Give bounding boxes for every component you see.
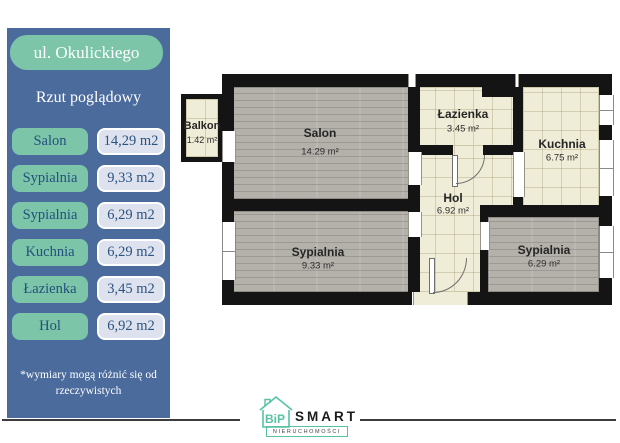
- balcony-label: Balkon: [184, 120, 221, 132]
- bedroom2-window: [599, 226, 614, 278]
- balcony-area: 1.42 m²: [187, 135, 218, 145]
- entrance-opening: [413, 292, 468, 305]
- hall-area: 6.92 m²: [437, 206, 469, 217]
- footer-rule-right: [360, 419, 616, 421]
- bedroom1-label: Sypialnia: [292, 245, 345, 259]
- agency-logo: BiP SMART NIERUCHOMOŚCI: [258, 392, 358, 440]
- salon-area: 14.29 m²: [301, 147, 339, 158]
- kitchen-window-2: [599, 140, 614, 196]
- wall-top-kitchen: [517, 74, 612, 87]
- kitchen-label: Kuchnia: [538, 137, 585, 151]
- house-icon: BiP: [258, 395, 294, 429]
- wall-notch: [482, 74, 515, 97]
- salon-label: Salon: [304, 126, 337, 140]
- wall-hall-left: [408, 87, 420, 292]
- bathroom-area: 3.45 m²: [447, 124, 479, 135]
- salon-floor: [230, 87, 410, 199]
- salon-door-opening: [408, 152, 422, 185]
- kitchen-door-opening: [513, 152, 525, 197]
- wall-salon-bedroom1: [222, 199, 420, 211]
- logo-letters: BiP: [265, 412, 285, 426]
- balcony-door-opening: [222, 131, 236, 162]
- wall-bathroom-bottom-b: [483, 145, 517, 155]
- bathroom-label: Łazienka: [438, 107, 489, 121]
- hall-label: Hol: [443, 191, 462, 205]
- bedroom2-door-opening: [480, 222, 490, 250]
- footer-rule-left: [2, 419, 240, 421]
- bedroom2-label: Sypialnia: [518, 243, 571, 257]
- wall-bottom-right: [466, 292, 612, 305]
- bedroom1-area: 9.33 m²: [302, 261, 334, 272]
- wall-kitchen-left-top: [513, 87, 523, 152]
- wall-bottom-left: [222, 292, 412, 305]
- bedroom2-area: 6.29 m²: [528, 259, 560, 270]
- top-gap-1: [408, 74, 416, 87]
- bedroom1-window: [222, 222, 236, 280]
- kitchen-area: 6.75 m²: [546, 153, 578, 164]
- top-gap-2: [515, 74, 519, 87]
- logo-sub-text: NIERUCHOMOŚCI: [266, 426, 348, 437]
- floor-plan: Balkon 1.42 m² Salon 14.29 m² Łazienka 3…: [0, 0, 620, 443]
- wall-kitchen-bedroom2: [480, 205, 612, 217]
- wall-top-bathroom: [414, 74, 490, 87]
- logo-brand-text: SMART: [295, 409, 358, 424]
- bedroom1-door-opening: [408, 212, 422, 237]
- kitchen-window-1: [599, 95, 614, 125]
- wall-top-salon: [222, 74, 408, 87]
